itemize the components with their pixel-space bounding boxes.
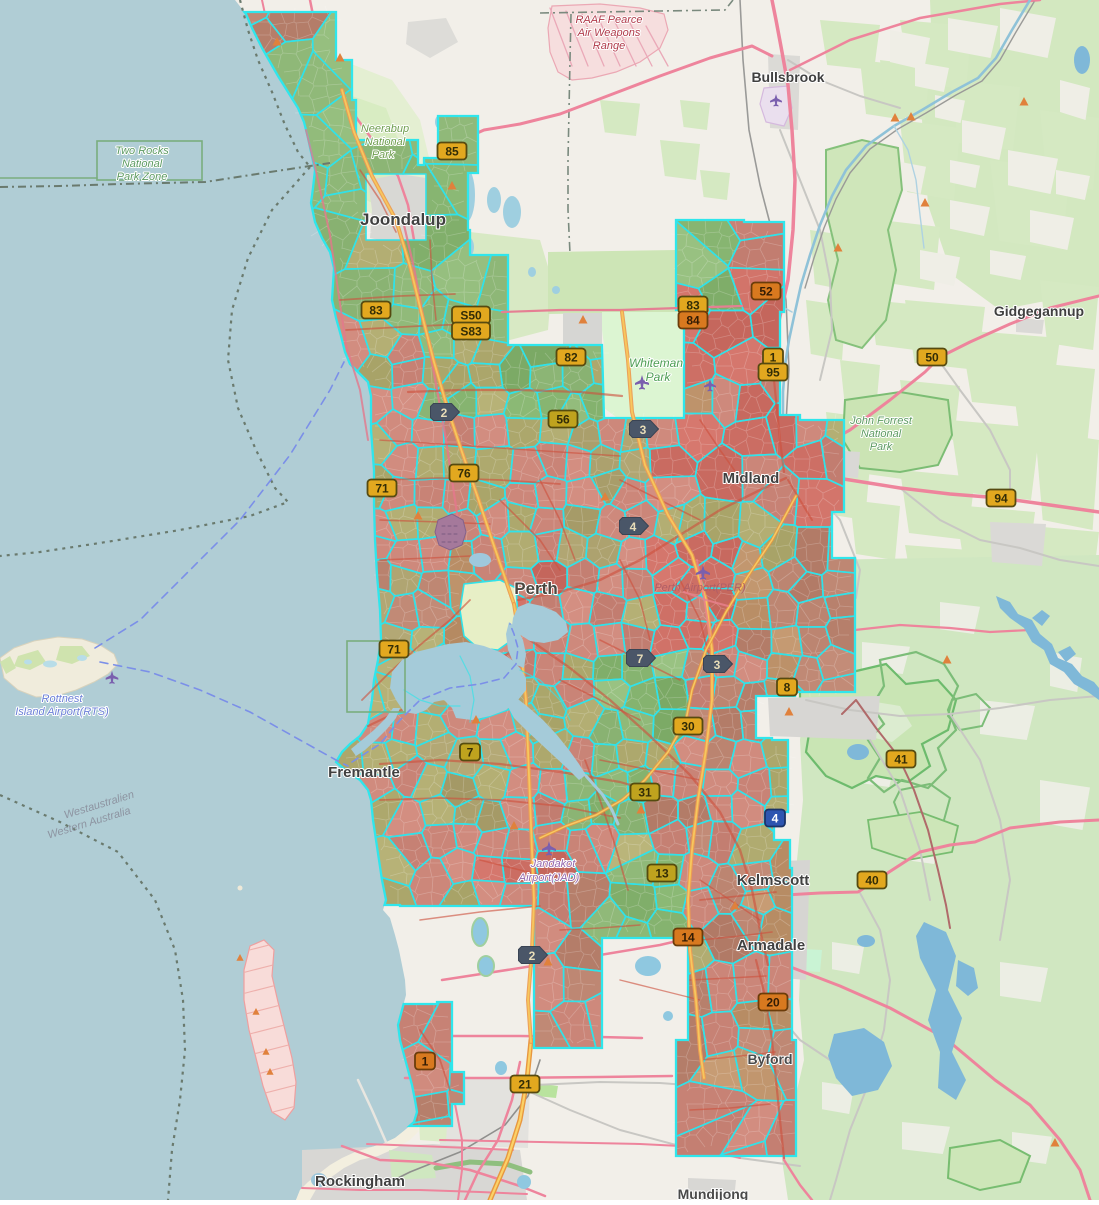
svg-text:S50: S50 (460, 309, 482, 323)
svg-text:30: 30 (681, 720, 695, 734)
svg-text:National: National (122, 158, 163, 170)
svg-text:3: 3 (640, 423, 647, 437)
svg-text:82: 82 (564, 351, 578, 365)
svg-text:John Forrest: John Forrest (849, 415, 913, 427)
svg-text:83: 83 (369, 304, 383, 318)
svg-text:41: 41 (894, 753, 908, 767)
svg-text:4: 4 (772, 812, 779, 826)
svg-text:Joondalup: Joondalup (360, 210, 446, 229)
svg-text:Mundijong: Mundijong (678, 1186, 749, 1200)
svg-text:Midland: Midland (723, 470, 780, 487)
svg-text:Island Airport(RTS): Island Airport(RTS) (15, 706, 109, 718)
svg-text:71: 71 (375, 482, 389, 496)
svg-text:3: 3 (714, 658, 721, 672)
svg-text:2: 2 (441, 406, 448, 420)
svg-text:National: National (365, 136, 406, 148)
svg-text:95: 95 (766, 366, 780, 380)
svg-text:Kelmscott: Kelmscott (737, 872, 810, 889)
svg-text:Neerabup: Neerabup (361, 123, 409, 135)
svg-text:31: 31 (638, 786, 652, 800)
svg-text:4: 4 (630, 520, 637, 534)
svg-text:RAAF Pearce: RAAF Pearce (575, 14, 642, 26)
svg-text:Byford: Byford (747, 1051, 792, 1067)
svg-text:76: 76 (457, 467, 471, 481)
svg-text:Perth: Perth (514, 579, 557, 598)
svg-text:Two Rocks: Two Rocks (115, 145, 169, 157)
svg-text:Bullsbrook: Bullsbrook (751, 69, 824, 85)
svg-text:52: 52 (759, 285, 773, 299)
svg-text:85: 85 (445, 145, 459, 159)
svg-text:20: 20 (766, 996, 780, 1010)
svg-text:40: 40 (865, 874, 879, 888)
svg-text:Rottnest: Rottnest (42, 693, 84, 705)
svg-text:14: 14 (681, 931, 695, 945)
svg-text:Gidgegannup: Gidgegannup (994, 303, 1084, 319)
svg-text:Rockingham: Rockingham (315, 1173, 405, 1190)
svg-text:71: 71 (387, 643, 401, 657)
svg-text:Armadale: Armadale (737, 937, 805, 954)
svg-text:Perth Airport(PER): Perth Airport(PER) (654, 582, 746, 594)
svg-text:50: 50 (925, 351, 939, 365)
svg-text:Fremantle: Fremantle (328, 764, 400, 781)
svg-text:Whiteman: Whiteman (629, 356, 683, 370)
svg-text:8: 8 (784, 681, 791, 695)
svg-text:Park: Park (646, 370, 672, 384)
svg-text:21: 21 (518, 1078, 532, 1092)
svg-text:94: 94 (994, 492, 1008, 506)
svg-text:84: 84 (686, 314, 700, 328)
svg-text:Jandakot: Jandakot (530, 858, 577, 870)
svg-text:Park: Park (870, 441, 893, 453)
svg-text:Airport(JAD): Airport(JAD) (518, 872, 580, 884)
svg-text:Air Weapons: Air Weapons (577, 27, 641, 39)
svg-text:National: National (861, 428, 902, 440)
svg-text:7: 7 (467, 746, 474, 760)
svg-text:13: 13 (655, 867, 669, 881)
svg-text:Park: Park (372, 149, 395, 161)
svg-text:S83: S83 (460, 325, 482, 339)
svg-text:Range: Range (593, 40, 625, 52)
svg-text:Park Zone: Park Zone (117, 171, 168, 183)
svg-text:7: 7 (637, 652, 644, 666)
svg-text:1: 1 (422, 1055, 429, 1069)
svg-text:2: 2 (529, 949, 536, 963)
svg-text:56: 56 (556, 413, 570, 427)
